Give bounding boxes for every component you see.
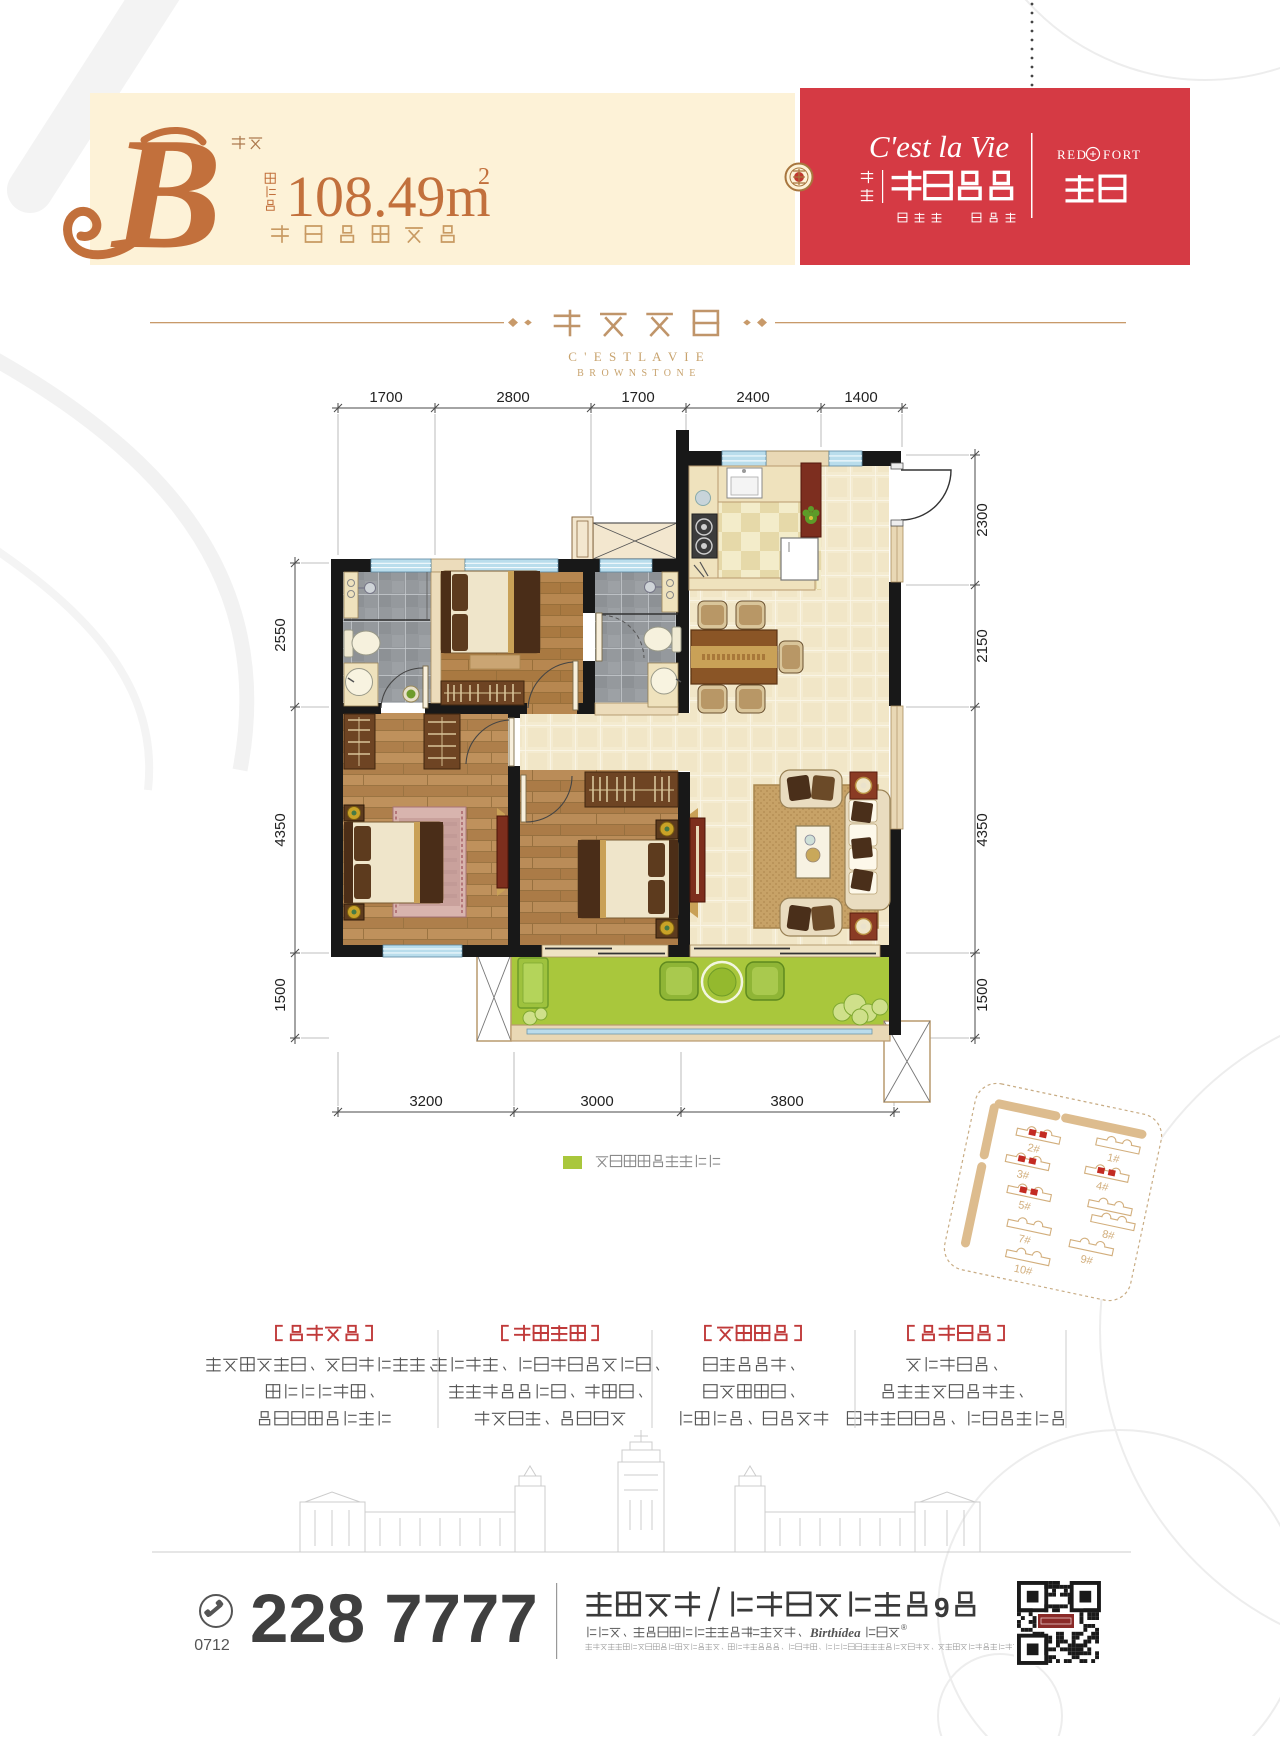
- svg-text:228 7777: 228 7777: [250, 1580, 538, 1657]
- svg-text:4350: 4350: [974, 813, 991, 846]
- svg-text:B R O W N S T O N E: B R O W N S T O N E: [577, 368, 697, 379]
- svg-text:2800: 2800: [496, 389, 529, 406]
- svg-text:108.49m: 108.49m: [286, 164, 491, 229]
- svg-text:FORT: FORT: [1103, 147, 1141, 162]
- svg-text:C ' E S T L A V I E: C ' E S T L A V I E: [568, 349, 706, 364]
- svg-text:2150: 2150: [974, 629, 991, 662]
- svg-text:1500: 1500: [272, 978, 289, 1011]
- svg-text:2400: 2400: [736, 389, 769, 406]
- svg-text:1700: 1700: [369, 389, 402, 406]
- svg-text:C'est la Vie: C'est la Vie: [869, 129, 1010, 164]
- svg-text:2300: 2300: [974, 503, 991, 536]
- svg-text:2: 2: [478, 164, 490, 190]
- svg-text:9: 9: [934, 1592, 950, 1623]
- svg-text:3800: 3800: [770, 1093, 803, 1110]
- svg-text:3000: 3000: [580, 1093, 613, 1110]
- svg-text:3200: 3200: [409, 1093, 442, 1110]
- svg-text:Birthídea: Birthídea: [809, 1625, 861, 1640]
- svg-text:0712: 0712: [194, 1637, 230, 1654]
- svg-text:RED: RED: [1057, 147, 1088, 162]
- svg-text:2550: 2550: [272, 618, 289, 651]
- svg-text:1700: 1700: [621, 389, 654, 406]
- svg-text:4350: 4350: [272, 813, 289, 846]
- svg-text:1400: 1400: [844, 389, 877, 406]
- svg-text:1500: 1500: [974, 978, 991, 1011]
- svg-text:®: ®: [901, 1623, 907, 1632]
